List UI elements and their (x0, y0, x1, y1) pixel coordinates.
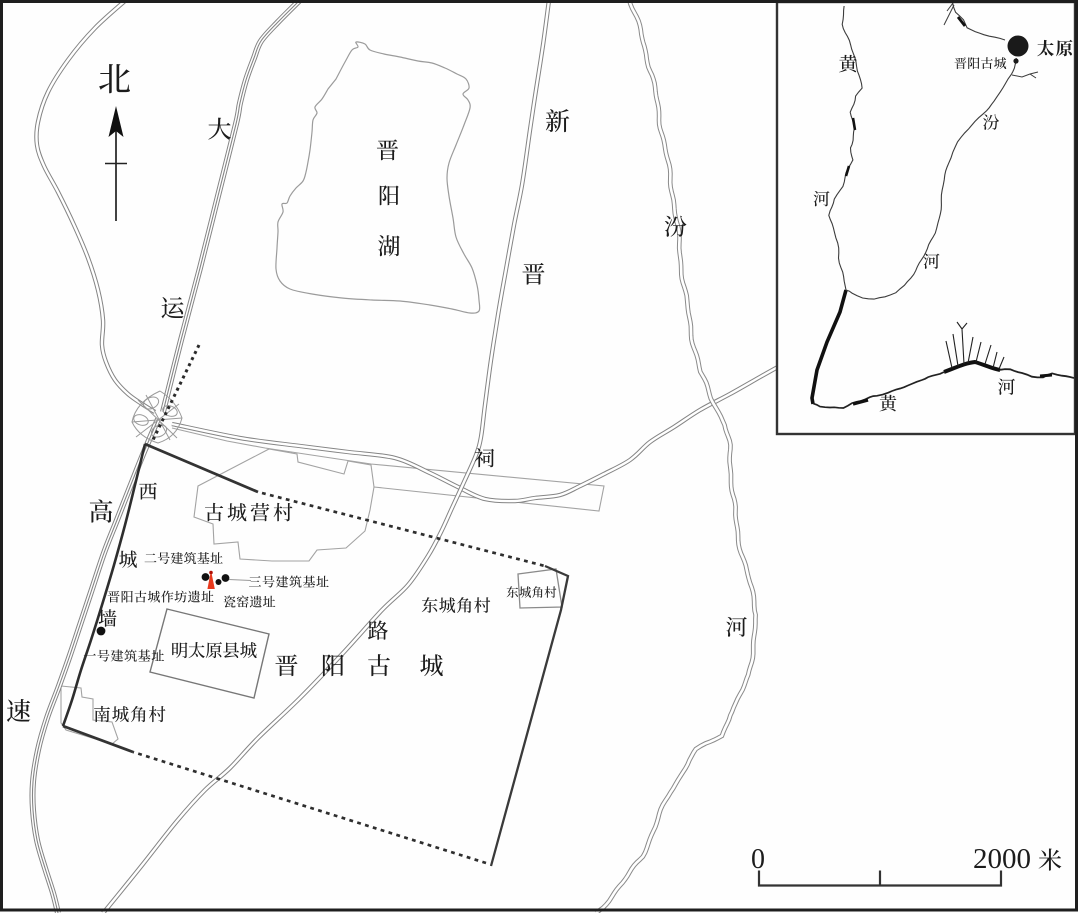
svg-text:2000: 2000 (973, 843, 1031, 875)
svg-text:0: 0 (751, 844, 765, 875)
